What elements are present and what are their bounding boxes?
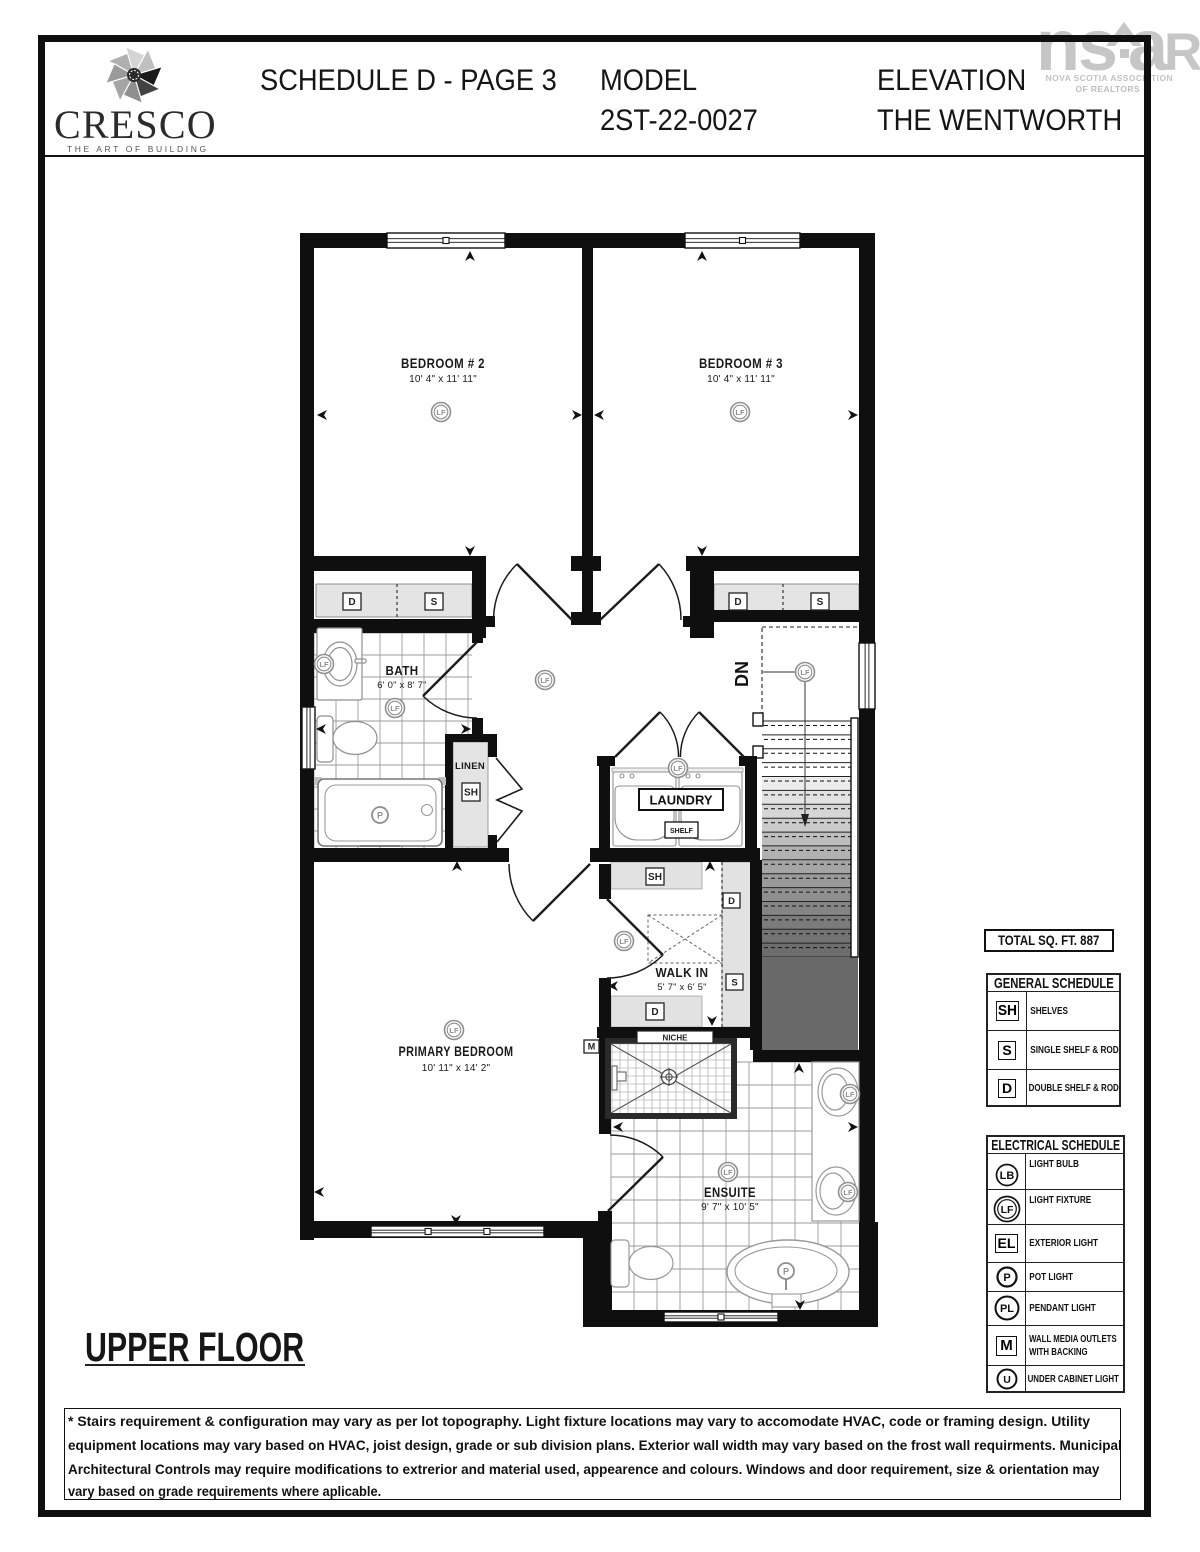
svg-text:LINEN: LINEN — [455, 761, 485, 772]
svg-text:PRIMARY BEDROOM: PRIMARY BEDROOM — [399, 1043, 514, 1059]
svg-text:BEDROOM # 2: BEDROOM # 2 — [401, 355, 485, 371]
svg-text:BATH: BATH — [386, 663, 419, 678]
svg-text:SH: SH — [464, 788, 478, 799]
svg-text:WALK IN: WALK IN — [656, 965, 709, 980]
svg-text:S: S — [817, 597, 824, 608]
svg-text:LAUNDRY: LAUNDRY — [649, 793, 712, 808]
svg-text:10' 4" x 11' 11": 10' 4" x 11' 11" — [707, 374, 775, 385]
svg-text:S: S — [731, 977, 737, 988]
svg-text:ENSUITE: ENSUITE — [704, 1184, 756, 1200]
svg-text:BEDROOM # 3: BEDROOM # 3 — [699, 355, 783, 371]
svg-text:10' 11" x 14' 2": 10' 11" x 14' 2" — [422, 1063, 491, 1074]
svg-text:D: D — [651, 1007, 658, 1018]
svg-text:SHELF: SHELF — [670, 828, 694, 835]
svg-text:D: D — [734, 597, 741, 608]
svg-text:D: D — [728, 896, 735, 907]
svg-text:M: M — [588, 1042, 596, 1052]
svg-text:SH: SH — [648, 872, 662, 883]
svg-text:S: S — [431, 597, 438, 608]
svg-text:5' 7" x 6' 5": 5' 7" x 6' 5" — [657, 982, 706, 993]
svg-text:9' 7" x 10' 5": 9' 7" x 10' 5" — [701, 1202, 759, 1213]
svg-text:10' 4" x 11' 11": 10' 4" x 11' 11" — [409, 374, 477, 385]
svg-text:DN: DN — [732, 661, 752, 687]
svg-text:NICHE: NICHE — [663, 1034, 689, 1043]
svg-text:D: D — [348, 597, 355, 608]
svg-text:6' 0" x 8' 7": 6' 0" x 8' 7" — [377, 680, 426, 691]
